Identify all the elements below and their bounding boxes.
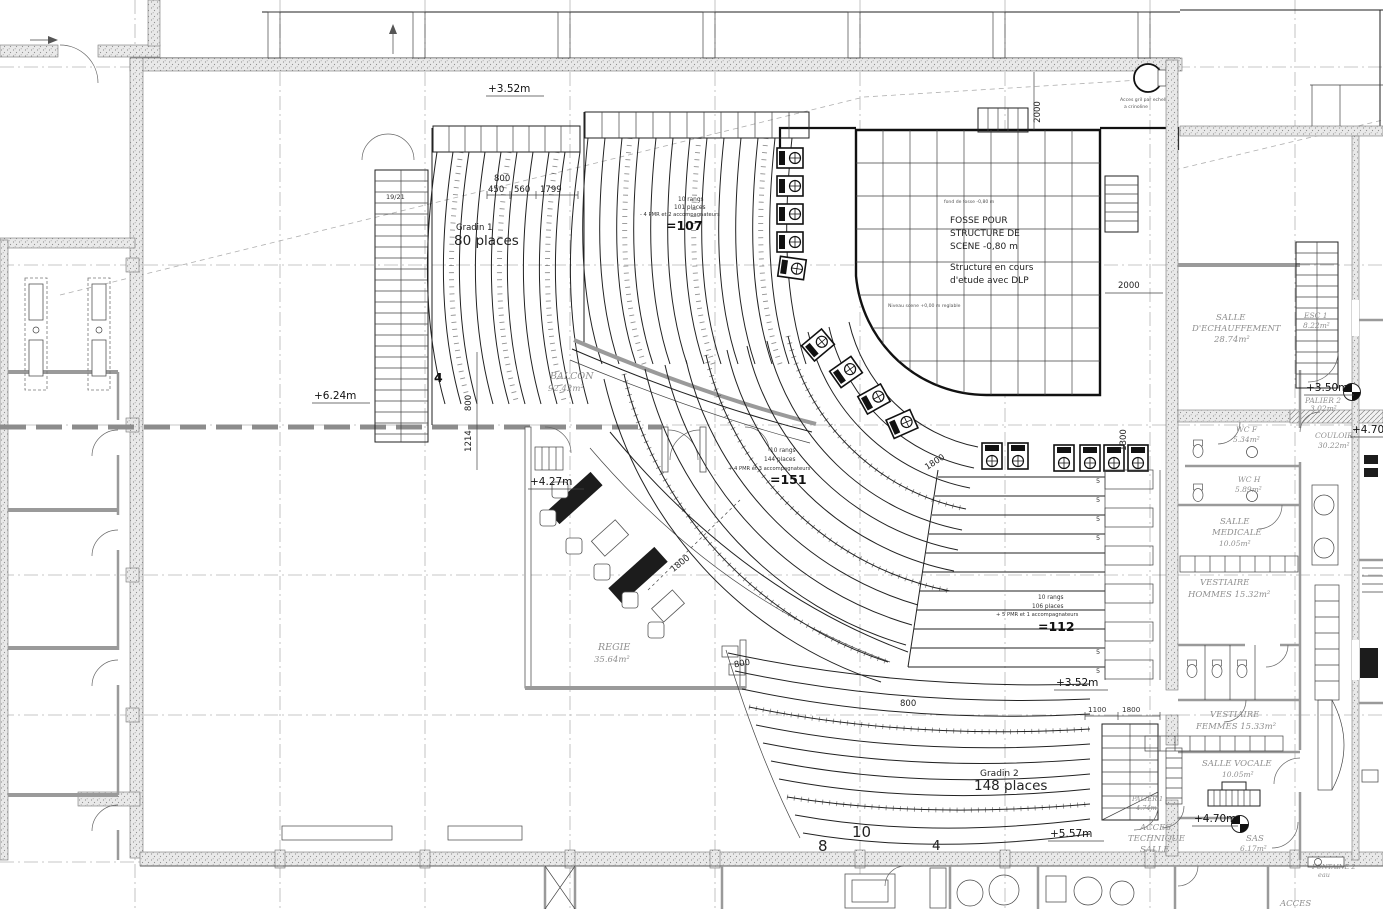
block112-rows: 10 rangs: [1038, 595, 1064, 601]
gradin2-block: Gradin 2 148 places 8 10 4 +5.57m: [282, 646, 1158, 855]
palier1-area: 4.74m²: [1135, 804, 1160, 812]
svg-text:+4.70m: +4.70m: [1352, 424, 1383, 436]
side-block-112: 10 rangs 106 places + 5 PMR et 1 accompa…: [908, 470, 1160, 690]
svg-text:+5.57m: +5.57m: [1050, 828, 1092, 840]
couloir-area: 30.22m²: [1318, 441, 1350, 450]
medicale-l1: SALLE: [1220, 517, 1250, 527]
dim-1800-mid: 1800: [923, 453, 947, 473]
dim-450: 450: [488, 185, 504, 195]
medicale-l2: MEDICALE: [1211, 528, 1262, 538]
row-count-4-balcony: 4: [434, 370, 443, 385]
stage-level-note: Niveau scene +0,00 m reglable: [888, 303, 961, 309]
block151-rows: 10 rangs: [770, 448, 796, 454]
vocale-area: 10.05m²: [1222, 770, 1254, 779]
dim-800a: 800: [733, 658, 751, 671]
row-seat-count: 5: [1096, 534, 1100, 542]
lockers-hommes: [1180, 556, 1298, 572]
row-count-10: 10: [852, 823, 871, 841]
acces-bottom: ACCES: [1279, 899, 1311, 909]
far-right-fixtures: [1359, 320, 1383, 782]
fosse-depth-note: fond de fosse -0,80 m: [944, 199, 995, 205]
gril-note-1: Acces gril par echelle: [1120, 97, 1169, 103]
wch-name: WC H: [1238, 475, 1261, 484]
floor-plan-sheet: fond de fosse -0,80 m FOSSE POUR STRUCTU…: [0, 0, 1383, 909]
regie-walls: [525, 427, 746, 688]
row-seat-count: 5: [1096, 477, 1100, 485]
dim-2000v-label: 2000: [1033, 101, 1043, 123]
wch-area: 5.89m²: [1235, 485, 1262, 494]
level-470-vocale: +4.70m: [1192, 813, 1238, 826]
gradin1-places: 80 places: [454, 233, 519, 249]
balcon-area: 92.42m²: [548, 384, 584, 394]
dim-560: 560: [514, 185, 530, 195]
block112-pmr: + 5 PMR et 1 accompagnateurs: [996, 612, 1079, 618]
row-seat-count: 5: [1096, 648, 1100, 656]
dim-1100: 1100: [1088, 705, 1107, 714]
wall-columns: [126, 258, 1300, 868]
acces-tech-l3: SALLE: [1140, 845, 1170, 855]
dims-balcony-vertical: 800 1214: [464, 352, 477, 470]
svg-text:+4.70m: +4.70m: [1194, 813, 1236, 825]
level-470-couloir: +4.70m: [1350, 424, 1383, 437]
dim-2000-horizontal: 2000: [1105, 281, 1163, 293]
wcf-name: WC F: [1236, 425, 1258, 434]
echauffement-l2: D'ECHAUFFEMENT: [1191, 324, 1282, 334]
block112-total: =112: [1038, 619, 1075, 634]
dim-1800b: 1800: [1122, 705, 1141, 714]
fosse-title-2: STRUCTURE DE: [950, 229, 1020, 239]
block112-places: 106 places: [1032, 604, 1064, 610]
medicale-area: 10.05m²: [1219, 539, 1251, 548]
row-seat-count: 5: [1096, 515, 1100, 523]
speaker-column: [777, 148, 806, 280]
balcon-label: BALCON 92.42m²: [548, 371, 594, 394]
svg-text:+3.52m: +3.52m: [488, 83, 530, 95]
level-557: +5.57m: [1048, 828, 1104, 841]
row-count-8: 8: [818, 837, 828, 855]
regie-area: 35.64m²: [594, 655, 630, 665]
dim-1300: 1300: [1119, 429, 1129, 451]
couloir-name: COULOIR: [1315, 431, 1353, 440]
gradin2-places: 148 places: [974, 778, 1047, 794]
block107-total: =107: [666, 218, 703, 233]
svg-text:+3.52m: +3.52m: [1056, 677, 1098, 689]
vestiaire-f-l1: VESTIAIRE: [1210, 710, 1260, 720]
dims-top-left: 800 450 560 1799: [487, 174, 578, 199]
block151-places: 144 places: [764, 457, 796, 463]
sas-area: 6.17m²: [1240, 844, 1267, 853]
svg-text:+3.50m: +3.50m: [1306, 382, 1348, 394]
stair-427: [535, 430, 700, 470]
row-count-4: 4: [932, 838, 941, 854]
sas-name: SAS: [1246, 834, 1264, 844]
balcony-block-107: 10 rangs 101 places - 4 PMR et 2 accompa…: [570, 112, 816, 443]
console-desks: [540, 472, 684, 638]
acces-tech-l1: ACCES: [1139, 823, 1171, 833]
dim-1214: 1214: [464, 430, 474, 452]
palier1-stairs: [1166, 748, 1182, 804]
regie-name: REGIE: [597, 642, 630, 653]
left-wing: [8, 36, 118, 860]
dim-800: 800: [494, 174, 510, 184]
block107-places: 101 places: [674, 205, 706, 211]
palier1-name: PALIER 1: [1131, 795, 1163, 803]
vestiaire-f-l2: FEMMES 15.33m²: [1195, 722, 1277, 732]
vestiaire-h-l1: VESTIAIRE: [1200, 578, 1250, 588]
dim-2000-vertical: 2000: [1033, 72, 1043, 130]
esc1-area: 8.22m²: [1303, 321, 1330, 330]
piano: [1208, 782, 1260, 806]
gril-note-2: a crinoline: [1124, 104, 1148, 110]
level-350: +3.50m: [1304, 382, 1354, 395]
corridor-columns: [268, 12, 1150, 58]
fosse-study-2: d'etude avec DLP: [950, 276, 1029, 286]
level-352-top: +3.52m: [486, 83, 544, 96]
fontaine-sub: eau: [1318, 871, 1330, 879]
fosse-title-3: SCENE -0,80 m: [950, 242, 1018, 252]
couloir-fixtures: [1312, 485, 1344, 790]
level-624: +6.24m: [312, 390, 370, 403]
bottom-strip: [140, 866, 1383, 909]
dim-800b: 800: [900, 699, 916, 709]
vestiaire-h-l2: HOMMES 15.32m²: [1187, 590, 1271, 600]
fosse-study-1: Structure en cours: [950, 263, 1034, 273]
level-352-side: +3.52m: [1054, 677, 1108, 690]
row-seat-count: 5: [1096, 667, 1100, 675]
dim-2000h-label: 2000: [1118, 281, 1140, 291]
echauffement-area: 28.74m²: [1213, 335, 1250, 345]
gradin1-name: Gradin 1: [456, 223, 493, 233]
right-arrow-icon: [30, 36, 58, 44]
dim-800v: 800: [464, 395, 474, 411]
svg-text:+6.24m: +6.24m: [314, 390, 356, 402]
vocale-name: SALLE VOCALE: [1202, 759, 1272, 769]
fontaine-name: FONTAINE 2: [1311, 863, 1355, 871]
row-seat-count: 5: [1096, 496, 1100, 504]
esc1-name: ESC 1: [1303, 311, 1328, 320]
right-wing: SALLE D'ECHAUFFEMENT 28.74m² ESC 1 8.22m…: [1128, 60, 1383, 909]
block151-total: =151: [770, 472, 807, 487]
stair-count-note: 19/21: [386, 193, 405, 201]
wcf-area: 5.34m²: [1233, 435, 1260, 444]
echauffement-l1: SALLE: [1216, 313, 1246, 323]
balcon-name: BALCON: [549, 371, 594, 382]
up-arrow-icon: [389, 24, 397, 54]
svg-text:+4.27m: +4.27m: [530, 476, 572, 488]
palier2-area: 3.02m²: [1310, 404, 1337, 413]
dim-1799: 1799: [540, 185, 562, 195]
block107-rows: 10 rangs: [678, 197, 704, 203]
acces-tech-l2: TECHNIQUE: [1128, 834, 1186, 844]
dim-1800-regie: 1800: [669, 553, 692, 574]
fosse-title-1: FOSSE POUR: [950, 216, 1008, 226]
stage-fosse: fond de fosse -0,80 m FOSSE POUR STRUCTU…: [780, 64, 1178, 395]
